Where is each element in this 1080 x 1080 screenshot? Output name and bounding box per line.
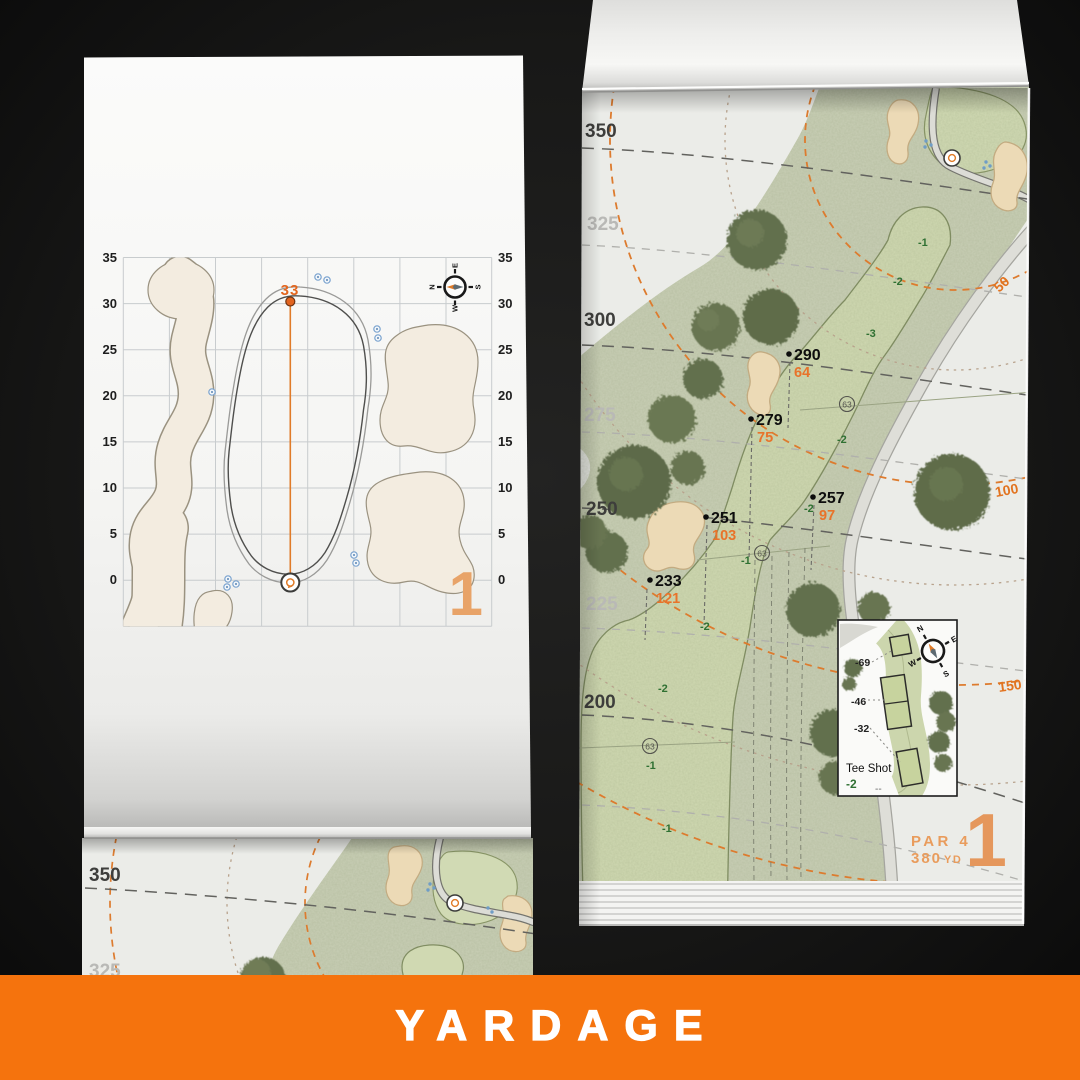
svg-text:-2: -2 (893, 276, 903, 288)
svg-text:0: 0 (498, 572, 505, 587)
svg-text:-3: -3 (866, 328, 876, 340)
svg-text:150: 150 (997, 676, 1023, 695)
svg-text:63: 63 (645, 742, 655, 752)
svg-text:64: 64 (794, 365, 810, 381)
svg-text:257: 257 (818, 490, 845, 507)
svg-text:63: 63 (757, 549, 767, 559)
svg-text:-46: -46 (851, 696, 866, 708)
svg-text:25: 25 (103, 342, 117, 357)
svg-text:-1: -1 (662, 823, 672, 835)
svg-text:15: 15 (498, 434, 512, 449)
svg-text:E: E (451, 263, 460, 268)
svg-text:S: S (474, 284, 483, 289)
svg-text:103: 103 (712, 528, 736, 544)
svg-text:1: 1 (449, 560, 483, 629)
svg-text:-2: -2 (700, 621, 710, 633)
svg-text:YARDAGE: YARDAGE (395, 1002, 718, 1050)
svg-text:N: N (428, 284, 437, 289)
svg-text:30: 30 (498, 296, 512, 311)
svg-text:0: 0 (110, 572, 117, 587)
svg-text:251: 251 (711, 510, 738, 527)
svg-text:15: 15 (103, 434, 117, 449)
svg-text:290: 290 (794, 347, 821, 364)
svg-text:-2: -2 (837, 434, 847, 446)
svg-text:-1: -1 (646, 760, 656, 772)
svg-text:-2: -2 (804, 503, 814, 515)
svg-text:30: 30 (103, 296, 117, 311)
svg-text:63: 63 (842, 400, 852, 410)
svg-text:--: -- (875, 784, 882, 795)
svg-text:W: W (451, 304, 460, 312)
svg-text:10: 10 (498, 480, 512, 495)
svg-text:20: 20 (498, 388, 512, 403)
svg-text:PAR 4: PAR 4 (911, 833, 971, 850)
svg-text:121: 121 (656, 591, 680, 607)
svg-text:-32: -32 (854, 723, 869, 735)
svg-text:10: 10 (103, 480, 117, 495)
svg-text:233: 233 (655, 573, 682, 590)
svg-text:-1: -1 (918, 237, 928, 249)
svg-text:25: 25 (498, 342, 512, 357)
svg-text:35: 35 (103, 250, 117, 265)
svg-text:279: 279 (756, 412, 783, 429)
svg-text:97: 97 (819, 508, 835, 524)
svg-text:35: 35 (498, 250, 512, 265)
svg-text:-1: -1 (741, 555, 751, 567)
svg-text:350: 350 (89, 865, 121, 886)
svg-text:1: 1 (965, 798, 1007, 882)
svg-text:5: 5 (498, 526, 505, 541)
svg-text:20: 20 (103, 388, 117, 403)
svg-text:-2: -2 (658, 683, 668, 695)
svg-text:-2: -2 (846, 777, 857, 791)
svg-text:5: 5 (110, 526, 117, 541)
svg-text:-69: -69 (855, 657, 870, 669)
svg-text:75: 75 (757, 430, 773, 446)
svg-text:Tee Shot: Tee Shot (846, 763, 892, 775)
